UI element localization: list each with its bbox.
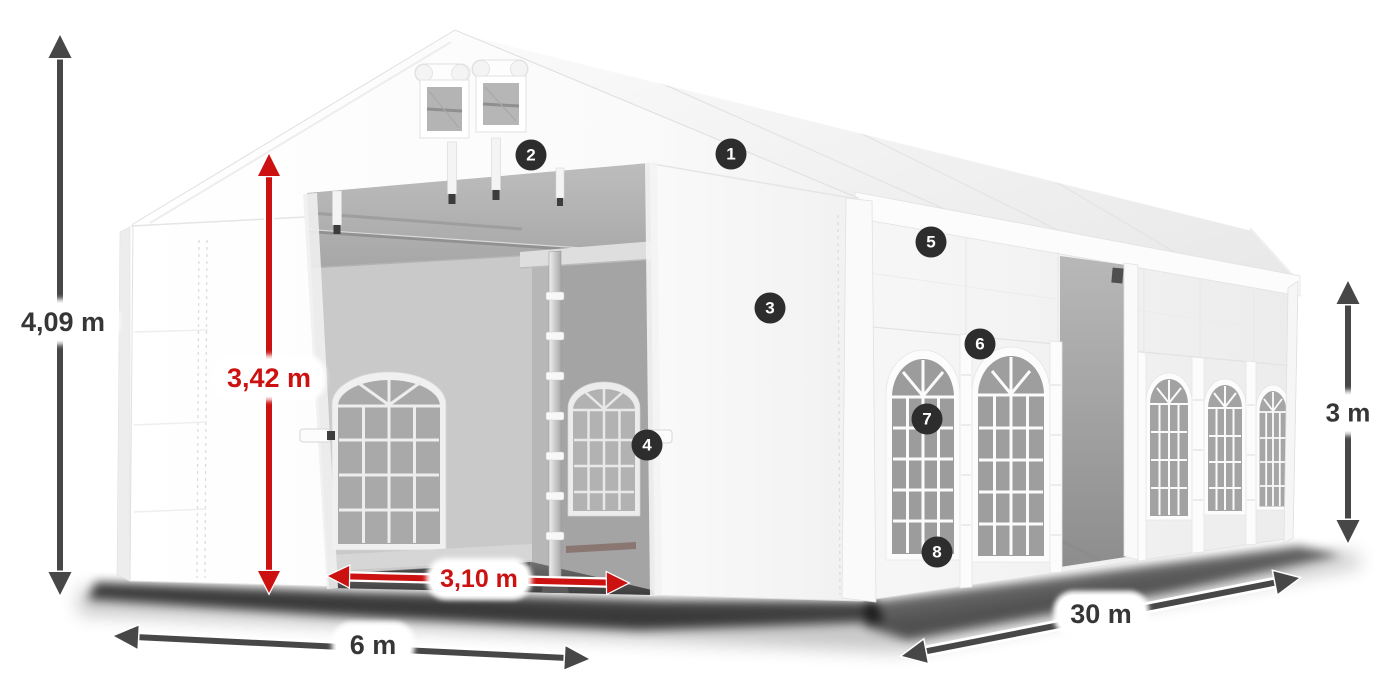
door-post: [1124, 263, 1138, 560]
dimension-label-wall-height: 3 m: [1314, 394, 1383, 431]
side-window-2: [972, 347, 1050, 562]
side-doorway-open: [1060, 256, 1138, 567]
callout-hotspot-1[interactable]: 1: [716, 139, 747, 170]
callout-hotspot-5[interactable]: 5: [916, 227, 947, 258]
callout-hotspot-3[interactable]: 3: [755, 293, 786, 324]
dimension-label-front-width: 6 m: [336, 626, 411, 664]
callout-hotspot-4[interactable]: 4: [632, 430, 663, 461]
tent-dimension-diagram: 4,09 m 3,42 m 3,10 m 6 m 30 m 3 m 1 2 3 …: [0, 0, 1400, 700]
side-window-4: [1204, 379, 1246, 515]
door-handle-left: [300, 429, 335, 442]
dimension-label-entrance-width: 3,10 m: [430, 562, 528, 596]
callout-hotspot-2[interactable]: 2: [516, 140, 547, 171]
side-window-3: [1146, 373, 1192, 520]
vent-2: [472, 60, 528, 132]
dimension-label-entrance-height: 3,42 m: [216, 359, 322, 397]
callout-hotspot-8[interactable]: 8: [922, 537, 953, 568]
front-corner-post: [842, 198, 876, 602]
side-window-1: [886, 350, 960, 560]
dimension-label-total-height: 4,09 m: [10, 303, 116, 341]
entrance-interior: [300, 150, 660, 600]
corner-bracket: [1111, 268, 1123, 284]
tent-illustration: [0, 0, 1400, 700]
callout-hotspot-6[interactable]: 6: [965, 329, 996, 360]
dimension-label-side-length: 30 m: [1057, 595, 1145, 633]
callout-hotspot-7[interactable]: 7: [912, 404, 943, 435]
left-edge-strip: [117, 227, 130, 581]
vent-1: [415, 64, 470, 138]
